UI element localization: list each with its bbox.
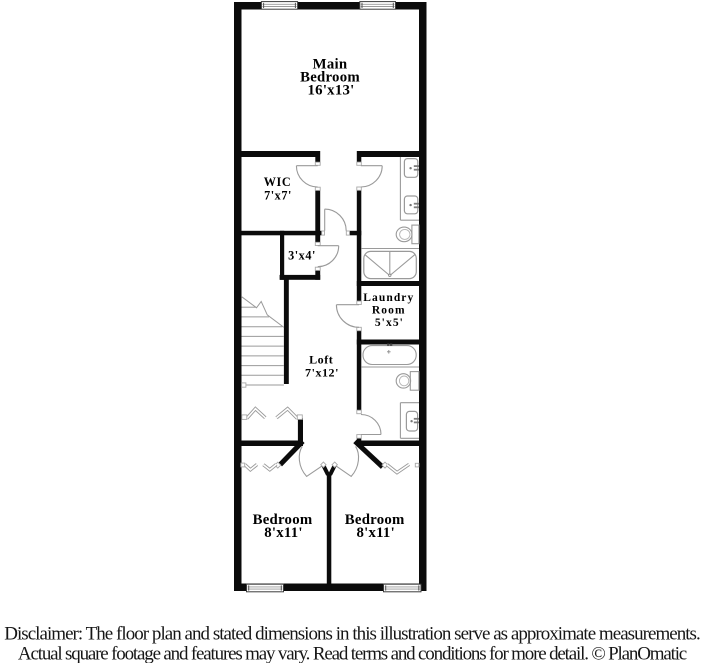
svg-text:3'x4': 3'x4': [288, 249, 316, 263]
svg-text:7'x7': 7'x7': [264, 188, 292, 202]
svg-text:7'x12': 7'x12': [305, 365, 339, 379]
svg-text:WIC: WIC: [264, 175, 291, 189]
svg-text:16'x13': 16'x13': [308, 82, 355, 98]
svg-text:5'x5': 5'x5': [375, 317, 404, 329]
svg-text:8'x11': 8'x11': [264, 525, 303, 541]
svg-text:8'x11': 8'x11': [356, 525, 395, 541]
svg-text:Laundry: Laundry: [363, 292, 414, 304]
svg-text:Disclaimer: The floor plan and: Disclaimer: The floor plan and stated di…: [4, 624, 700, 645]
svg-text:Room: Room: [372, 304, 406, 316]
svg-text:Loft: Loft: [309, 352, 333, 366]
svg-text:Actual square footage and feat: Actual square footage and features may v…: [18, 644, 687, 663]
